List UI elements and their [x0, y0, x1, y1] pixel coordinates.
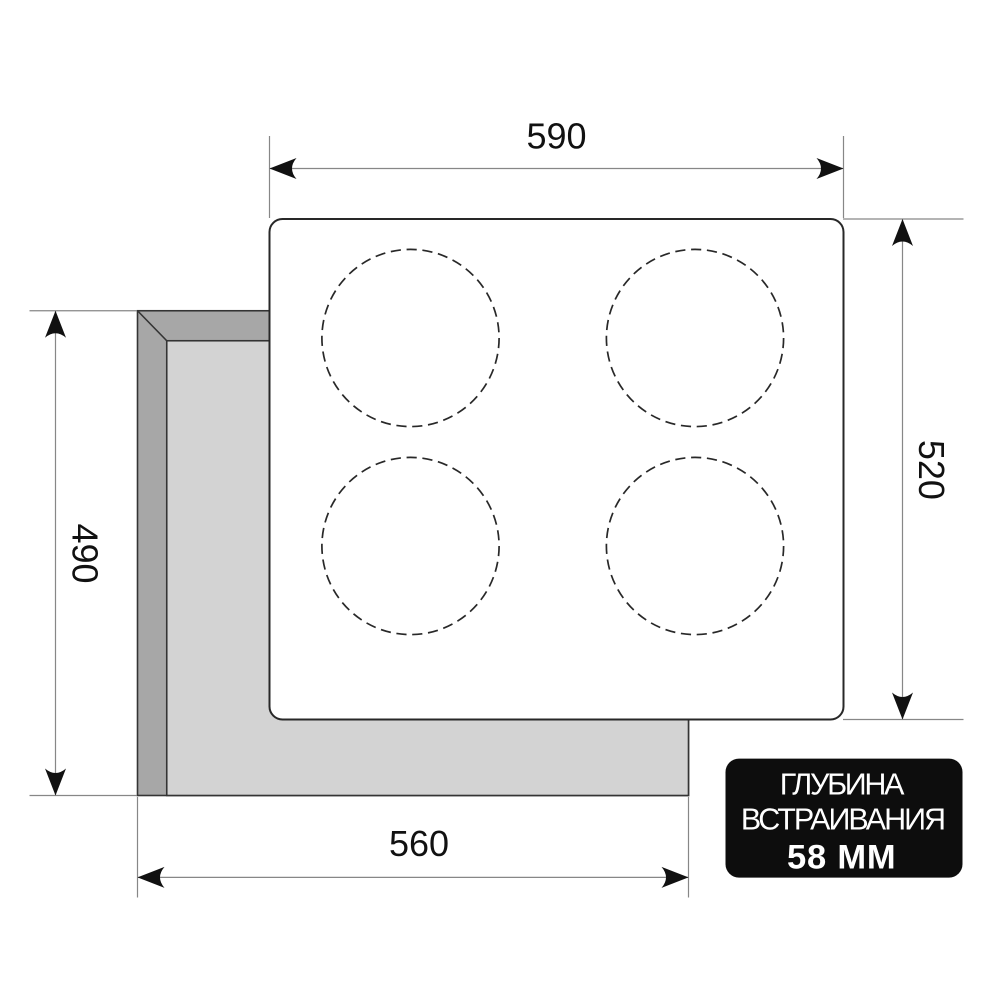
svg-text:58 ММ: 58 ММ — [787, 839, 896, 877]
svg-text:520: 520 — [911, 440, 952, 500]
svg-text:ВСТРАИВАНИЯ: ВСТРАИВАНИЯ — [741, 803, 944, 837]
svg-text:490: 490 — [65, 523, 106, 583]
svg-text:ГЛУБИНА: ГЛУБИНА — [780, 768, 905, 802]
svg-text:590: 590 — [526, 116, 586, 157]
svg-text:560: 560 — [389, 823, 449, 864]
